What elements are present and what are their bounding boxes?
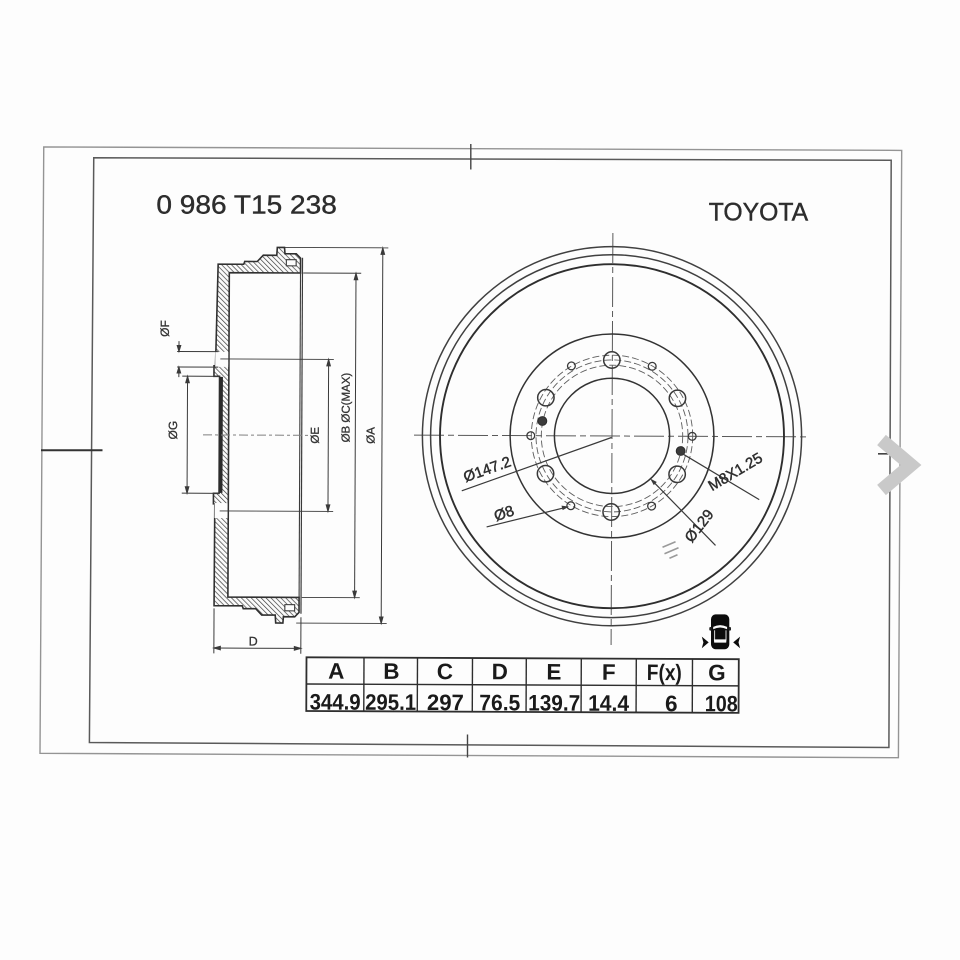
svg-text:D: D [492, 659, 508, 684]
svg-text:6: 6 [665, 691, 678, 716]
svg-text:C: C [437, 659, 453, 684]
svg-text:295.1: 295.1 [365, 690, 416, 715]
svg-text:Ø129: Ø129 [682, 506, 718, 545]
svg-text:Ø8: Ø8 [492, 502, 517, 525]
svg-text:14.4: 14.4 [588, 691, 630, 716]
svg-text:D: D [249, 634, 258, 648]
svg-text:ØG: ØG [166, 421, 180, 440]
svg-text:A: A [328, 659, 344, 684]
svg-text:ØE: ØE [310, 427, 322, 444]
svg-text:E: E [546, 660, 561, 685]
svg-text:TOYOTA: TOYOTA [709, 198, 809, 226]
svg-text:0 986 T15 238: 0 986 T15 238 [156, 190, 337, 220]
svg-text:139.7: 139.7 [528, 690, 580, 715]
svg-text:B: B [383, 659, 399, 684]
svg-text:108: 108 [705, 691, 738, 716]
svg-text:G: G [708, 660, 726, 685]
svg-text:76.5: 76.5 [479, 690, 520, 715]
svg-text:ØA: ØA [365, 427, 377, 444]
svg-text:ØB ØC(MAX): ØB ØC(MAX) [340, 373, 352, 443]
svg-text:ØF: ØF [158, 320, 172, 337]
svg-text:297: 297 [427, 690, 464, 715]
svg-text:F(x): F(x) [647, 660, 682, 685]
svg-text:344.9: 344.9 [310, 690, 361, 715]
svg-text:F: F [602, 660, 616, 685]
